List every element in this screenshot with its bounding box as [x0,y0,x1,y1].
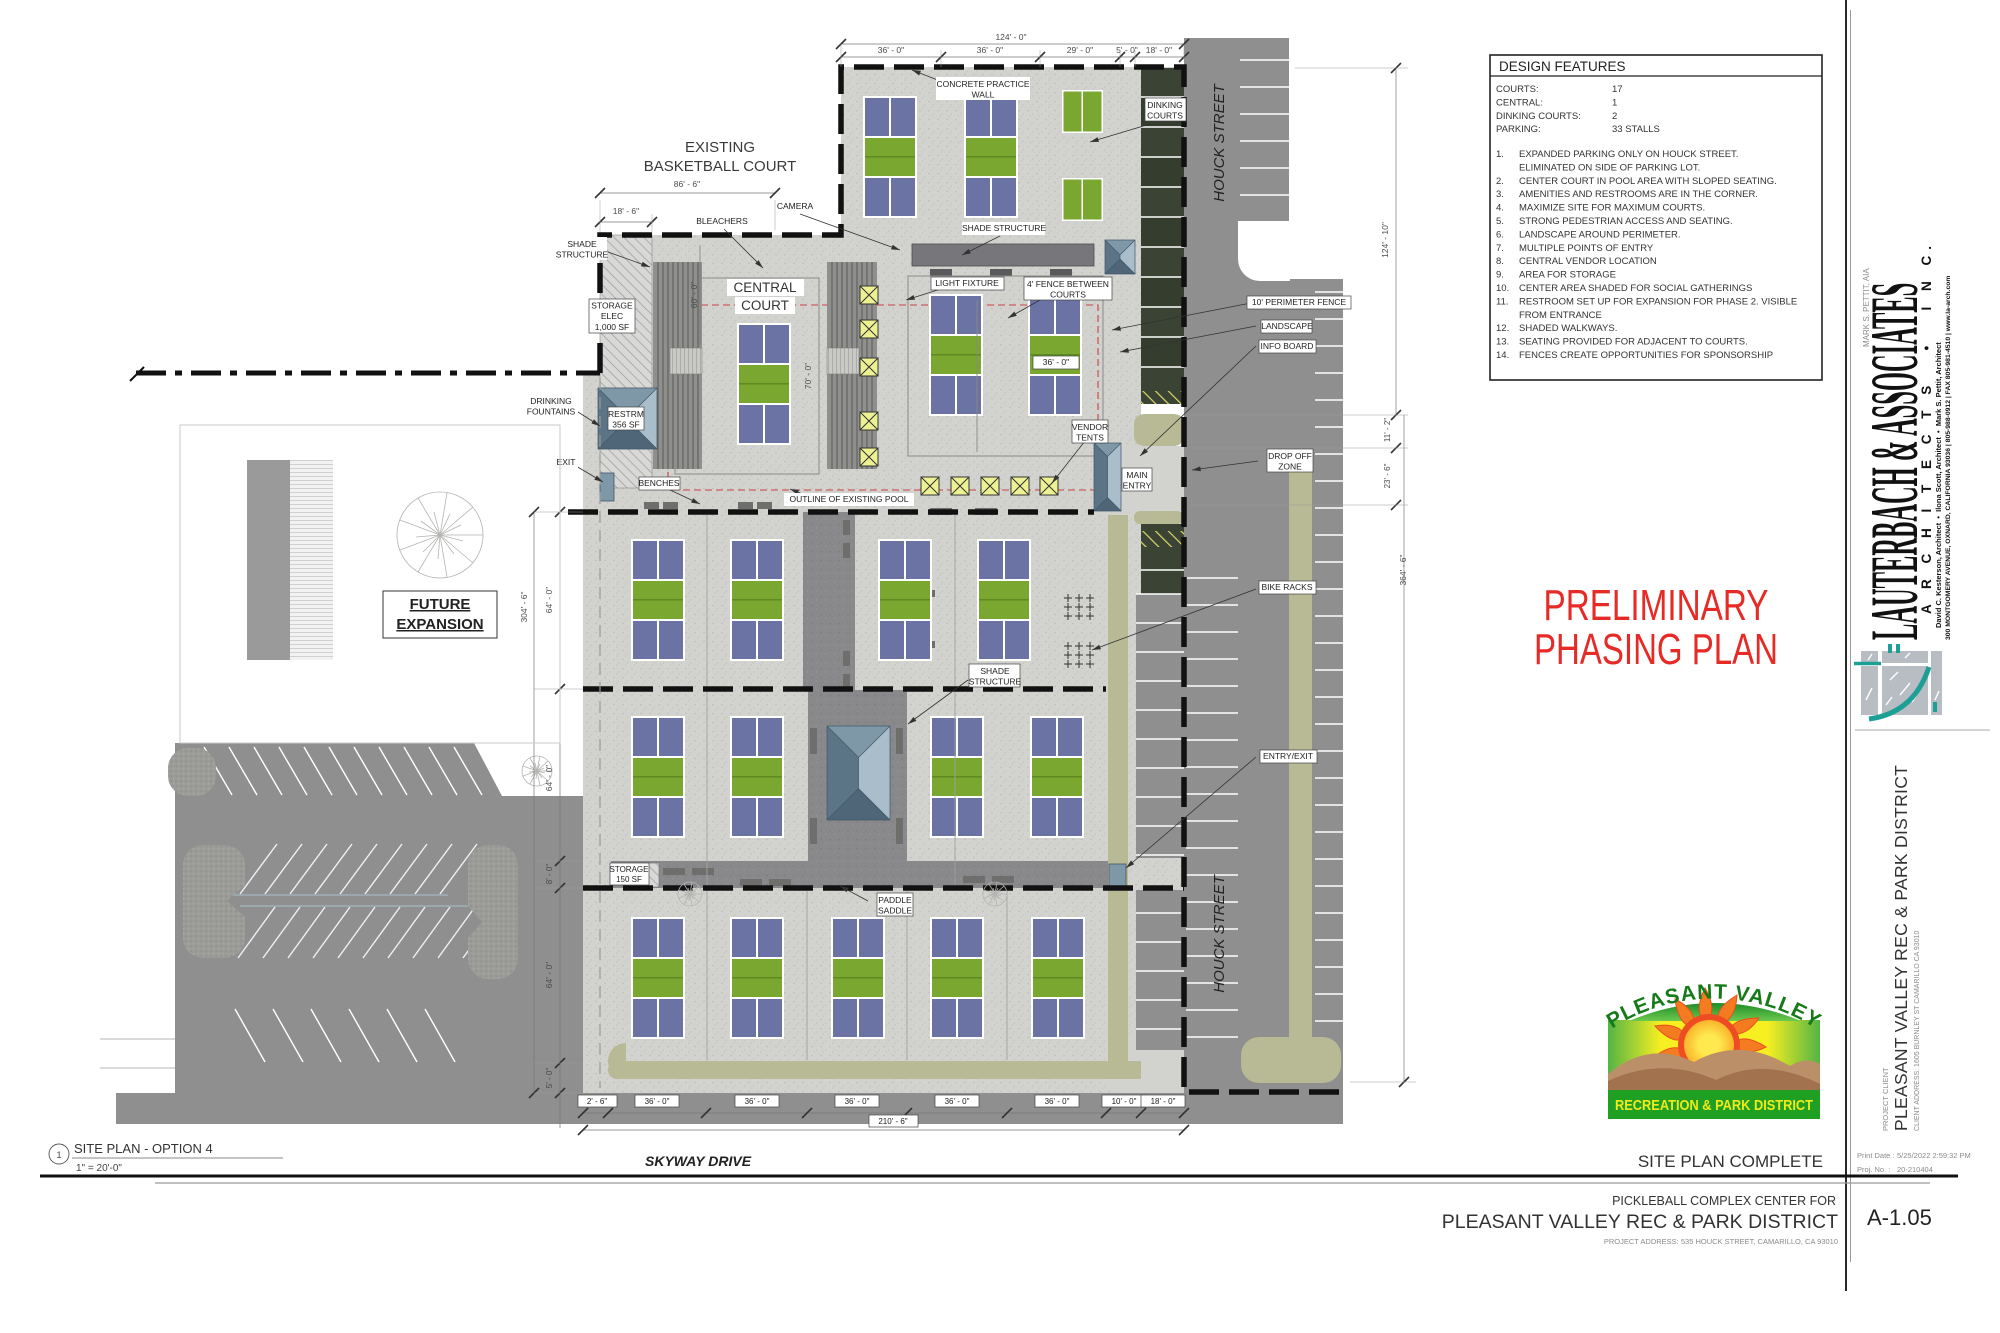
svg-text:LIGHT FIXTURE: LIGHT FIXTURE [935,278,999,288]
svg-text:DRINKING: DRINKING [530,396,572,406]
svg-text:MARK S. PETTIT, AIA: MARK S. PETTIT, AIA [1862,268,1871,347]
svg-text:5/25/2022 2:59:32 PM: 5/25/2022 2:59:32 PM [1897,1151,1971,1160]
svg-text:PROJECT CLIENT: PROJECT CLIENT [1881,1067,1890,1131]
svg-text:COURT: COURT [741,298,789,313]
svg-text:36' - 0": 36' - 0" [977,45,1003,55]
svg-text:RESTROOM SET UP FOR EXPANSION: RESTROOM SET UP FOR EXPANSION FOR PHASE … [1519,296,1797,307]
svg-text:STRONG PEDESTRIAN ACCESS AND S: STRONG PEDESTRIAN ACCESS AND SEATING. [1519,216,1733,227]
svg-text:6.: 6. [1496,229,1504,240]
svg-text:SADDLE: SADDLE [878,906,912,916]
svg-text:SEATING PROVIDED FOR ADJACENT: SEATING PROVIDED FOR ADJACENT TO COURTS. [1519,337,1748,348]
svg-text:David C. Kesterson, Architect: David C. Kesterson, Architect • Ilona Sc… [1934,342,1943,628]
svg-text:64' - 0": 64' - 0" [544,587,554,613]
svg-text:FUTURE: FUTURE [410,596,471,613]
svg-text:CONCRETE PRACTICE: CONCRETE PRACTICE [936,79,1029,89]
svg-text:8' - 0": 8' - 0" [545,864,554,885]
svg-text:1,000 SF: 1,000 SF [595,322,630,332]
svg-text:ZONE: ZONE [1278,462,1302,472]
svg-text:TENTS: TENTS [1076,433,1104,443]
svg-text:1.: 1. [1496,149,1504,160]
svg-text:36' - 0": 36' - 0" [845,1097,870,1106]
svg-text:AMENITIES AND RESTROOMS ARE IN: AMENITIES AND RESTROOMS ARE IN THE CORNE… [1519,189,1758,200]
svg-text:2.: 2. [1496,176,1504,187]
svg-text:SKYWAY DRIVE: SKYWAY DRIVE [645,1153,752,1169]
svg-text:PLEASANT VALLEY REC & PARK DIS: PLEASANT VALLEY REC & PARK DISTRICT [1442,1211,1838,1233]
svg-text:CENTRAL: CENTRAL [733,280,797,295]
svg-text:18' - 6": 18' - 6" [613,206,639,216]
svg-text:INFO BOARD: INFO BOARD [1261,341,1314,351]
svg-text:ELIMINATED ON SIDE OF PARKING: ELIMINATED ON SIDE OF PARKING LOT. [1519,162,1700,173]
svg-text:36' - 0": 36' - 0" [645,1097,670,1106]
svg-text:RESTRM: RESTRM [608,409,644,419]
svg-text:SITE PLAN - OPTION 4: SITE PLAN - OPTION 4 [74,1141,213,1156]
svg-text:9.: 9. [1496,270,1504,281]
svg-text:CENTER AREA SHADED FOR SOCIAL: CENTER AREA SHADED FOR SOCIAL GATHERINGS [1519,283,1752,294]
svg-text:HOUCK STREET: HOUCK STREET [1211,82,1228,201]
svg-text:18' - 0": 18' - 0" [1146,45,1172,55]
svg-text:1: 1 [1612,97,1617,108]
svg-text:10.: 10. [1496,283,1509,294]
svg-text:CENTER COURT IN POOL AREA WITH: CENTER COURT IN POOL AREA WITH SLOPED SE… [1519,176,1777,187]
svg-text:SHADED WALKWAYS.: SHADED WALKWAYS. [1519,323,1617,334]
svg-text:PICKLEBALL COMPLEX CENTER FOR: PICKLEBALL COMPLEX CENTER FOR [1612,1194,1836,1208]
svg-text:20-210404: 20-210404 [1897,1165,1933,1174]
svg-text:RECREATION & PARK DISTRICT: RECREATION & PARK DISTRICT [1615,1098,1813,1114]
svg-text:ENTRY/EXIT: ENTRY/EXIT [1263,751,1313,761]
svg-text:36' - 0": 36' - 0" [1045,1097,1070,1106]
svg-text:EXPANSION: EXPANSION [396,616,483,633]
svg-text:DESIGN FEATURES: DESIGN FEATURES [1499,59,1626,74]
svg-text:3.: 3. [1496,189,1504,200]
svg-text:MAXIMIZE SITE FOR MAXIMUM COUR: MAXIMIZE SITE FOR MAXIMUM COURTS. [1519,203,1705,214]
svg-text:14.: 14. [1496,350,1509,361]
svg-text:DINKING: DINKING [1147,100,1182,110]
svg-text:BLEACHERS: BLEACHERS [696,216,748,226]
svg-text:10' PERIMETER FENCE: 10' PERIMETER FENCE [1252,297,1347,307]
svg-text:LANDSCAPE AROUND PERIMETER.: LANDSCAPE AROUND PERIMETER. [1519,229,1681,240]
svg-text:4' FENCE BETWEEN: 4' FENCE BETWEEN [1027,279,1109,289]
svg-text:BENCHES: BENCHES [638,478,679,488]
svg-text:FENCES CREATE OPPORTUNITIES FO: FENCES CREATE OPPORTUNITIES FOR SPONSORS… [1519,350,1773,361]
svg-text:150 SF: 150 SF [616,875,642,884]
svg-text:70' - 0": 70' - 0" [803,363,813,389]
svg-text:33 STALLS: 33 STALLS [1612,124,1660,135]
svg-text:5.: 5. [1496,216,1504,227]
svg-text:EXISTING: EXISTING [685,139,755,156]
svg-text:11.: 11. [1496,296,1509,307]
svg-text:36' - 0": 36' - 0" [745,1097,770,1106]
svg-text:COURTS:: COURTS: [1496,84,1539,95]
svg-text:36' - 0": 36' - 0" [878,45,904,55]
svg-text:SHADE: SHADE [567,239,597,249]
svg-text:11' - 2": 11' - 2" [1383,418,1392,442]
svg-text:7.: 7. [1496,243,1504,254]
svg-text:OUTLINE OF EXISTING POOL: OUTLINE OF EXISTING POOL [789,494,908,504]
svg-text:12.: 12. [1496,323,1509,334]
svg-text:EXIT: EXIT [557,457,576,467]
svg-text:18' - 0": 18' - 0" [1151,1097,1176,1106]
svg-text:STORAGE: STORAGE [591,300,633,310]
svg-text:8.: 8. [1496,256,1504,267]
svg-text:4.: 4. [1496,203,1504,214]
svg-text:FOUNTAINS: FOUNTAINS [527,407,576,417]
svg-text:VENDOR: VENDOR [1072,422,1108,432]
svg-text:MULTIPLE POINTS OF ENTRY: MULTIPLE POINTS OF ENTRY [1519,243,1654,254]
svg-text:1" = 20'-0": 1" = 20'-0" [76,1163,122,1174]
svg-text:64' - 0": 64' - 0" [544,962,554,988]
svg-text:356 SF: 356 SF [612,420,639,430]
svg-text:STRUCTURE: STRUCTURE [556,250,609,260]
svg-text:PADDLE: PADDLE [878,895,912,905]
svg-text:Print Date :: Print Date : [1857,1151,1895,1160]
svg-text:PARKING:: PARKING: [1496,124,1541,135]
svg-text:Proj. No. :: Proj. No. : [1857,1165,1890,1174]
svg-text:36' - 0": 36' - 0" [945,1097,970,1106]
svg-text:AREA FOR STORAGE: AREA FOR STORAGE [1519,270,1616,281]
svg-text:ENTRY: ENTRY [1123,481,1152,491]
svg-text:23' - 6": 23' - 6" [1383,463,1392,488]
svg-text:SHADE: SHADE [980,666,1010,676]
svg-text:17: 17 [1612,84,1623,95]
svg-text:29' - 0": 29' - 0" [1067,45,1093,55]
svg-text:304' - 6": 304' - 6" [519,591,529,622]
svg-text:FROM ENTRANCE: FROM ENTRANCE [1519,310,1602,321]
svg-text:COURTS: COURTS [1147,111,1183,121]
svg-text:CAMERA: CAMERA [777,201,814,211]
svg-text:BIKE RACKS: BIKE RACKS [1261,582,1312,592]
svg-text:2: 2 [1612,111,1617,122]
svg-text:ELEC: ELEC [601,311,623,321]
svg-text:DROP OFF: DROP OFF [1268,451,1312,461]
svg-text:PROJECT ADDRESS: 535 HOUCK STR: PROJECT ADDRESS: 535 HOUCK STREET, CAMAR… [1604,1237,1838,1246]
svg-text:1: 1 [56,1150,61,1160]
svg-text:10' - 0": 10' - 0" [1112,1097,1137,1106]
svg-text:13.: 13. [1496,337,1509,348]
svg-text:BASKETBALL COURT: BASKETBALL COURT [644,158,797,175]
svg-text:5' - 0": 5' - 0" [545,1068,554,1089]
svg-text:A-1.05: A-1.05 [1867,1205,1932,1230]
svg-text:COURTS: COURTS [1050,290,1086,300]
svg-text:36' - 0": 36' - 0" [1043,357,1069,367]
svg-text:364' - 6": 364' - 6" [1398,554,1408,585]
svg-text:LANDSCAPE: LANDSCAPE [1261,321,1313,331]
svg-text:124' - 0": 124' - 0" [995,32,1026,42]
svg-text:DINKING COURTS:: DINKING COURTS: [1496,111,1581,122]
svg-text:EXPANDED PARKING ONLY ON HOUCK: EXPANDED PARKING ONLY ON HOUCK STREET. [1519,149,1738,160]
svg-text:STRUCTURE: STRUCTURE [969,677,1022,687]
svg-text:5' - 0": 5' - 0" [1116,45,1138,55]
svg-text:86' - 6": 86' - 6" [674,179,700,189]
svg-text:210' - 6": 210' - 6" [878,1117,907,1126]
svg-text:300 MONTGOMERY AVENUE, OXNARD,: 300 MONTGOMERY AVENUE, OXNARD, CALIFORNI… [1945,276,1952,640]
svg-text:WALL: WALL [972,90,995,100]
svg-text:PHASING PLAN: PHASING PLAN [1534,625,1778,674]
svg-text:A R C H I T E C T S • I N: A R C H I T E C T S • I N C. [1919,240,1934,614]
svg-text:2' - 6": 2' - 6" [587,1097,608,1106]
svg-text:SITE PLAN COMPLETE: SITE PLAN COMPLETE [1638,1152,1823,1171]
svg-text:CENTRAL VENDOR LOCATION: CENTRAL VENDOR LOCATION [1519,256,1657,267]
svg-text:CLIENT ADDRESS: 1605 BURNLEY: CLIENT ADDRESS: 1605 BURNLEY ST CAMARILL… [1914,931,1921,1131]
svg-text:64' - 0": 64' - 0" [544,765,554,791]
svg-text:PRELIMINARY: PRELIMINARY [1544,581,1769,630]
svg-text:HOUCK STREET: HOUCK STREET [1211,873,1228,992]
svg-text:CENTRAL:: CENTRAL: [1496,97,1543,108]
svg-text:60' - 0": 60' - 0" [689,282,699,308]
svg-text:PLEASANT VALLEY REC & PARK DIS: PLEASANT VALLEY REC & PARK DISTRICT [1891,765,1911,1131]
svg-text:MAIN: MAIN [1126,470,1147,480]
svg-text:STORAGE: STORAGE [610,865,649,874]
svg-text:SHADE STRUCTURE: SHADE STRUCTURE [962,223,1046,233]
svg-text:124' - 10": 124' - 10" [1380,222,1390,258]
